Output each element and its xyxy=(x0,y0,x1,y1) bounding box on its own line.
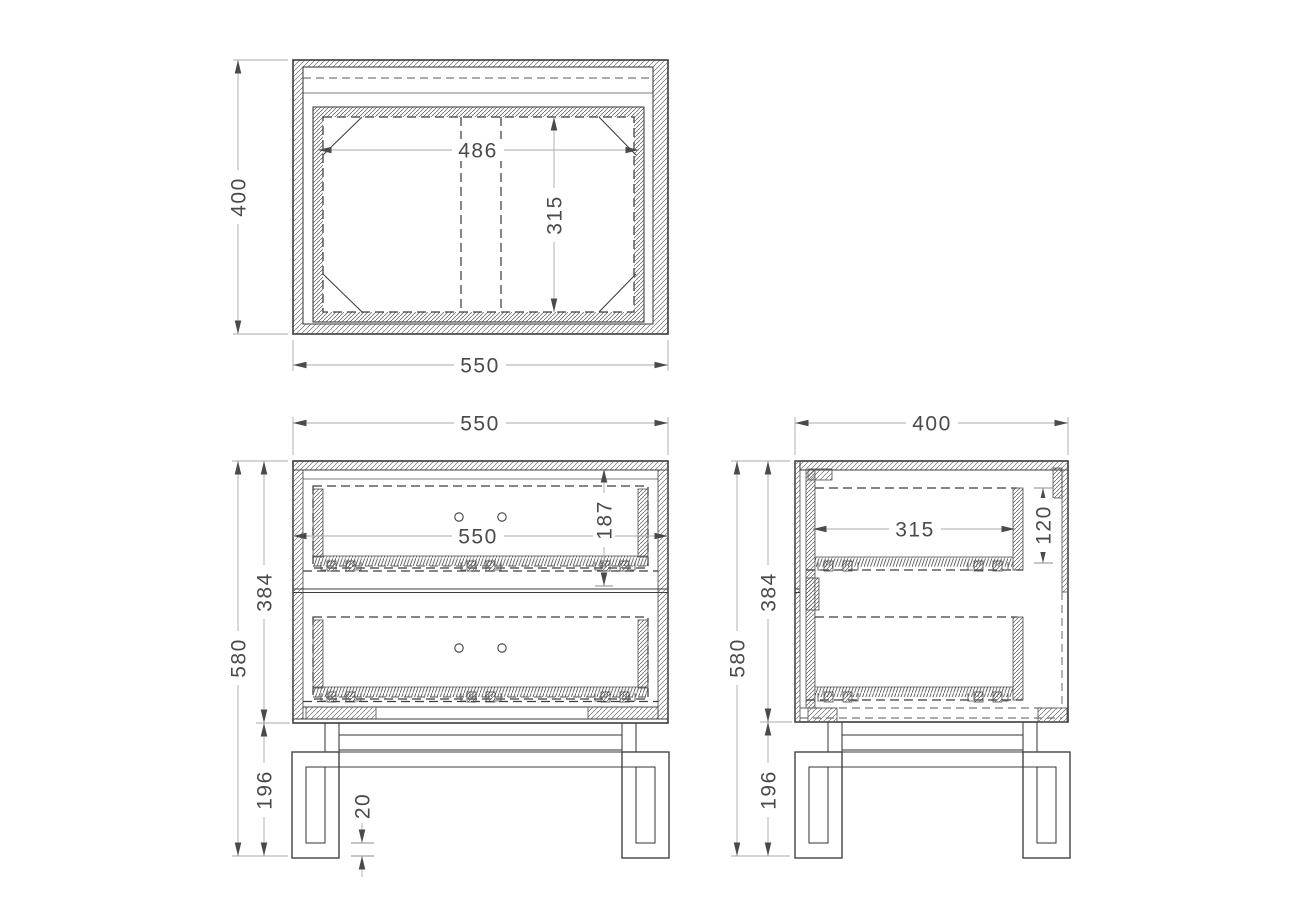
drawing-canvas: 400 550 486 315 xyxy=(0,0,1300,919)
page-background xyxy=(0,0,1300,919)
top-panel-hatch xyxy=(293,461,668,470)
dim-label-top-height: 400 xyxy=(228,177,251,217)
dim-label-side-depth: 400 xyxy=(912,413,952,436)
dim-label-front-drawer-height: 187 xyxy=(594,500,617,540)
right-side-panel-hatch xyxy=(658,470,668,719)
drawer-front-edge xyxy=(795,461,800,722)
dim-label-front-carcass-height: 384 xyxy=(254,572,277,612)
top-panel-hatch xyxy=(800,461,1068,470)
dim-label-front-width: 550 xyxy=(460,413,500,436)
drawer-side-left xyxy=(313,620,323,688)
dim-label-front-foot: 20 xyxy=(352,793,375,819)
bottom-panel-hatch-right xyxy=(588,707,658,719)
drawer-slide-band xyxy=(313,556,648,566)
drawer-back-section xyxy=(1013,617,1023,700)
back-panel-hatch xyxy=(1062,470,1068,592)
dim-label-side-carcass-height: 384 xyxy=(758,572,781,612)
dim-label-top-inner-width: 486 xyxy=(458,140,498,163)
bottom-hatch-left xyxy=(808,708,837,722)
dim-label-front-inner-width: 550 xyxy=(458,526,498,549)
dim-label-side-leg-height: 196 xyxy=(758,770,781,810)
mid-stretcher-section xyxy=(806,578,819,610)
dim-label-top-width: 550 xyxy=(460,355,500,378)
bottom-hatch-right xyxy=(1038,708,1067,722)
drawer-side-right xyxy=(638,620,648,688)
bottom-panel-hatch-left xyxy=(306,707,376,719)
dim-label-side-drawer-height: 120 xyxy=(1033,505,1056,545)
drawer-side-left xyxy=(313,489,323,557)
drawer-slide-band xyxy=(313,687,648,697)
technical-drawing: 400 550 486 315 xyxy=(0,0,1300,919)
drawer-side-right xyxy=(638,489,648,557)
dim-side-drawer-height: 120 xyxy=(1032,488,1056,563)
dim-label-side-inner-depth: 315 xyxy=(895,519,935,542)
dim-label-side-total-height: 580 xyxy=(727,638,750,678)
dim-label-front-leg-height: 196 xyxy=(254,770,277,810)
back-stretcher-section xyxy=(1053,468,1062,498)
left-side-panel-hatch xyxy=(293,470,303,719)
dim-label-front-total-height: 580 xyxy=(228,638,251,678)
dim-label-top-inner-depth: 315 xyxy=(544,195,567,235)
